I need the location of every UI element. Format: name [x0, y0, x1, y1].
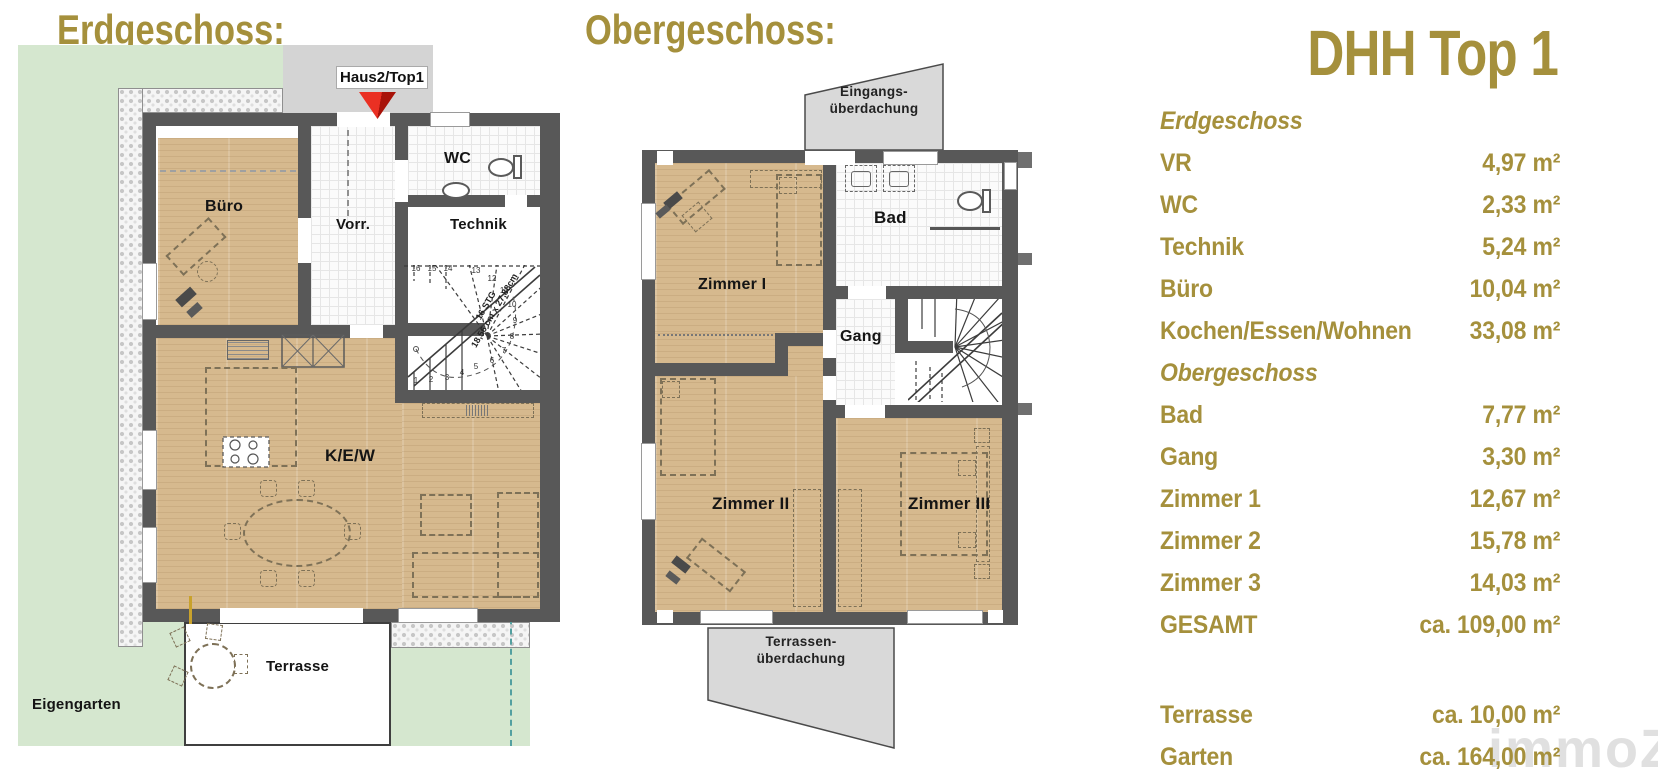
- room-buero-label: Büro: [205, 198, 243, 216]
- area-row-value: 3,30 m²: [1482, 443, 1560, 472]
- room-zimmer1-label: Zimmer I: [698, 276, 766, 294]
- toilet-icon: [957, 191, 983, 211]
- window: [907, 610, 983, 624]
- stair-step-number: 3: [445, 373, 450, 382]
- room-gang-label: Gang: [840, 328, 882, 346]
- sink-icon: [442, 182, 470, 199]
- stair-step-number: 2: [429, 375, 434, 384]
- room-zimmer3-label: Zimmer III: [908, 494, 990, 514]
- wall: [298, 263, 311, 325]
- area-row: Technik5,24 m²: [1160, 226, 1560, 268]
- entrance-canopy-label-1: Eingangs-: [800, 84, 948, 99]
- terrace-canopy-label-1: Terrassen-: [705, 634, 897, 649]
- terrace-canopy-label-2: überdachung: [705, 651, 897, 666]
- area-row-value: 15,78 m²: [1470, 527, 1561, 556]
- window: [641, 203, 656, 280]
- utility-line-marker: [189, 596, 192, 624]
- door-opening: [395, 160, 408, 202]
- stair-step-number: 6: [490, 356, 495, 365]
- upper-floor-title: Obergeschoss:: [585, 6, 836, 54]
- wall-opening: [657, 610, 673, 623]
- tv-unit: [466, 405, 488, 416]
- room-technik-label: Technik: [450, 216, 507, 233]
- garden-label: Eigengarten: [32, 696, 121, 713]
- door-opening: [845, 405, 885, 418]
- area-row-label: VR: [1160, 149, 1192, 178]
- sink-basin-icon: [851, 171, 871, 187]
- floorplan-page: Erdgeschoss: Obergeschoss: Terrasse Eige…: [0, 0, 1658, 774]
- gravel-band: [118, 88, 143, 647]
- pillow: [779, 177, 797, 194]
- area-row-label: GESAMT: [1160, 611, 1257, 640]
- area-row: GESAMTca. 109,00 m²: [1160, 604, 1560, 646]
- spacer: [1160, 646, 1560, 694]
- area-row: Zimmer 112,67 m²: [1160, 478, 1560, 520]
- area-row-label: Erdgeschoss: [1160, 107, 1302, 136]
- wardrobe: [793, 489, 821, 607]
- kitchen-sink-unit: [281, 334, 345, 368]
- area-row-label: Büro: [1160, 275, 1213, 304]
- area-row: VR4,97 m²: [1160, 142, 1560, 184]
- cooktop: [222, 436, 270, 468]
- area-row-value: 12,67 m²: [1470, 485, 1561, 514]
- area-row-value: 4,97 m²: [1482, 149, 1560, 178]
- dining-table: [243, 499, 351, 567]
- wardrobe: [838, 489, 862, 607]
- party-wall-stub: [1018, 152, 1032, 168]
- stair-step-number: 4: [460, 368, 465, 377]
- stair-step-number: 1: [414, 376, 419, 385]
- room-bad-label: Bad: [874, 208, 907, 228]
- toilet-icon: [488, 158, 514, 177]
- stair-step-number: 5: [474, 362, 479, 371]
- dining-chair: [298, 480, 315, 497]
- area-row-label: Terrasse: [1160, 701, 1253, 730]
- stair-step-number: 8: [510, 332, 515, 341]
- wall-opening: [988, 610, 1003, 623]
- wall: [298, 126, 311, 218]
- door-opening: [823, 376, 836, 400]
- coffee-table: [420, 494, 472, 536]
- window: [1004, 162, 1017, 190]
- sofa: [412, 552, 539, 598]
- area-row: Zimmer 314,03 m²: [1160, 562, 1560, 604]
- wall: [404, 390, 540, 403]
- area-section-header: Erdgeschoss: [1160, 100, 1560, 142]
- area-row: Bad7,77 m²: [1160, 394, 1560, 436]
- area-row-label: Obergeschoss: [1160, 359, 1318, 388]
- door-opening: [848, 286, 886, 299]
- stair-step-number: 13: [472, 266, 481, 275]
- wall: [655, 363, 775, 376]
- area-row: Gartenca. 164,00 m²: [1160, 736, 1560, 774]
- dining-chair: [260, 480, 277, 497]
- sink-basin-icon: [889, 171, 909, 187]
- area-row-label: Kochen/Essen/Wohnen: [1160, 317, 1412, 346]
- terrace-label: Terrasse: [266, 658, 329, 675]
- area-row-value: ca. 164,00 m²: [1419, 743, 1560, 772]
- entrance-canopy-label-2: überdachung: [800, 101, 948, 116]
- toilet-tank-icon: [513, 155, 522, 179]
- nightstand: [974, 564, 990, 579]
- window: [142, 263, 157, 320]
- terrace-door-opening: [220, 608, 363, 623]
- area-row-value: 5,24 m²: [1482, 233, 1560, 262]
- area-row-value: 2,33 m²: [1482, 191, 1560, 220]
- window: [430, 112, 470, 127]
- toilet-tank-icon: [982, 189, 991, 213]
- area-row-value: ca. 10,00 m²: [1432, 701, 1560, 730]
- window: [398, 608, 478, 623]
- area-row-label: Technik: [1160, 233, 1244, 262]
- room-vorraum-label: Vorr.: [336, 216, 370, 233]
- area-table: ErdgeschossVR4,97 m²WC2,33 m²Technik5,24…: [1160, 100, 1560, 774]
- area-row: Kochen/Essen/Wohnen33,08 m²: [1160, 310, 1560, 352]
- area-row-label: Zimmer 3: [1160, 569, 1261, 598]
- room-gang-floor: [836, 299, 895, 405]
- stair-step-number: 15: [428, 265, 437, 273]
- area-row-value: 10,04 m²: [1470, 275, 1561, 304]
- kitchen-appliance: [227, 340, 269, 360]
- window: [641, 443, 656, 520]
- area-row: WC2,33 m²: [1160, 184, 1560, 226]
- wall: [775, 333, 788, 376]
- dining-chair: [344, 523, 361, 540]
- wall-opening: [805, 151, 855, 165]
- floor-edge-line: [658, 334, 773, 336]
- party-wall-stub: [1018, 253, 1032, 265]
- terrace-table: [190, 643, 236, 689]
- stair-step-number: 9: [513, 316, 518, 325]
- entrance-door-opening: [337, 112, 390, 127]
- shower-partition: [930, 227, 1000, 230]
- area-row: Büro10,04 m²: [1160, 268, 1560, 310]
- window: [142, 430, 157, 490]
- area-row: Terrasseca. 10,00 m²: [1160, 694, 1560, 736]
- area-row-label: Bad: [1160, 401, 1203, 430]
- stair-step-number: 16: [412, 265, 421, 273]
- stair-step-number: 10: [508, 300, 517, 309]
- door-opening: [823, 330, 836, 358]
- pillow: [958, 532, 976, 548]
- dining-chair: [298, 570, 315, 587]
- party-wall-stub: [1018, 403, 1032, 415]
- door-opening: [505, 195, 527, 207]
- pillow: [662, 381, 680, 398]
- unit-title-text: DHH Top 1: [1307, 17, 1558, 89]
- wall-opening: [657, 151, 673, 165]
- closet-divider-line: [347, 130, 349, 216]
- dining-chair: [260, 570, 277, 587]
- staircase-upper: [908, 299, 1002, 402]
- room-kew-label: K/E/W: [325, 446, 375, 466]
- window: [883, 151, 938, 165]
- area-row-label: Garten: [1160, 743, 1233, 772]
- area-row-label: Zimmer 1: [1160, 485, 1261, 514]
- stair-step-number: 14: [444, 265, 453, 273]
- dining-chair: [224, 523, 241, 540]
- area-row-value: 33,08 m²: [1470, 317, 1561, 346]
- area-row: Gang3,30 m²: [1160, 436, 1560, 478]
- area-row-label: Gang: [1160, 443, 1218, 472]
- window: [700, 610, 773, 624]
- window: [142, 527, 157, 583]
- door-opening: [350, 325, 383, 338]
- stair-step-number: 7: [502, 346, 507, 355]
- room-zimmer2-label: Zimmer II: [712, 494, 789, 514]
- pillow: [958, 460, 976, 476]
- closet-divider-line: [160, 170, 296, 172]
- area-row: Zimmer 215,78 m²: [1160, 520, 1560, 562]
- entrance-tag: Haus2/Top1: [336, 66, 428, 89]
- nightstand: [974, 428, 990, 443]
- area-row-value: 14,03 m²: [1470, 569, 1561, 598]
- area-row-value: ca. 109,00 m²: [1419, 611, 1560, 640]
- area-row-value: 7,77 m²: [1482, 401, 1560, 430]
- area-row-label: WC: [1160, 191, 1198, 220]
- terrace-chair: [205, 623, 223, 641]
- area-row-label: Zimmer 2: [1160, 527, 1261, 556]
- room-wc-label: WC: [444, 150, 471, 168]
- area-section-header: Obergeschoss: [1160, 352, 1560, 394]
- terrace-chair: [234, 654, 248, 674]
- unit-title: DHH Top 1: [1192, 16, 1558, 90]
